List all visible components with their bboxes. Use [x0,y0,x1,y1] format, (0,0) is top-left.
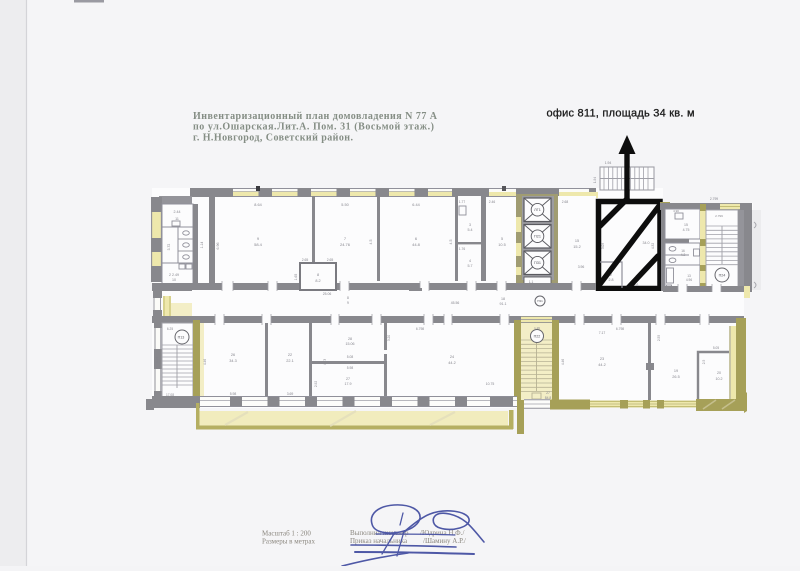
svg-text:П31: П31 [537,299,543,303]
svg-text:5.50: 5.50 [341,203,348,207]
svg-text:17.9: 17.9 [345,382,352,386]
svg-text:24: 24 [450,355,454,359]
svg-text:2 2.49: 2 2.49 [169,273,179,277]
svg-text:15: 15 [575,239,579,243]
svg-text:4.90: 4.90 [673,209,679,213]
svg-text:20: 20 [717,371,721,375]
svg-text:2.799: 2.799 [710,197,718,201]
svg-text:1.65: 1.65 [294,274,298,281]
svg-text:9: 9 [347,301,349,305]
svg-text:Инвентаризационный план домо: Инвентаризационный план домовладения N 7… [193,111,438,122]
svg-text:84.8: 84.8 [545,396,552,400]
svg-text:6.798: 6.798 [416,327,424,331]
svg-text:10.75: 10.75 [486,382,495,386]
svg-text:П21: П21 [534,235,541,239]
svg-text:44.2: 44.2 [598,363,605,367]
svg-text:8.2: 8.2 [315,279,320,283]
svg-text:5.7: 5.7 [468,264,473,268]
svg-text:34.0: 34.0 [643,241,650,245]
svg-text:19: 19 [674,369,678,373]
svg-text:1.76: 1.76 [459,247,466,251]
svg-text:4: 4 [469,259,471,263]
svg-text:/Шамину А.Р./: /Шамину А.Р./ [423,537,466,545]
svg-text:91.1: 91.1 [500,302,507,306]
svg-text:П13: П13 [178,335,185,339]
svg-text:4.46: 4.46 [561,359,565,365]
svg-text:6.96: 6.96 [216,243,220,250]
svg-text:2.65: 2.65 [327,258,334,262]
svg-text:15.06: 15.06 [346,342,355,346]
svg-text:4.96: 4.96 [686,278,692,282]
svg-text:2.92: 2.92 [314,381,318,387]
svg-text:8: 8 [347,296,349,300]
svg-text:П22: П22 [534,334,541,338]
svg-text:Выполнил инженер: Выполнил инженер [350,529,409,537]
svg-text:1.94: 1.94 [593,177,597,183]
svg-text:44.8: 44.8 [412,242,421,247]
svg-text:15: 15 [684,223,688,227]
svg-text:3.09: 3.09 [601,243,605,249]
svg-text:18: 18 [501,297,505,301]
svg-text:4.2: 4.2 [681,253,686,257]
svg-text:офис 811, площадь 34 кв. м: офис 811, площадь 34 кв. м [547,108,695,120]
svg-text:3.20: 3.20 [387,335,391,341]
svg-text:1.14: 1.14 [200,242,204,249]
svg-text:Размеры в метрах: Размеры в метрах [262,537,315,545]
svg-text:4.75: 4.75 [683,228,690,232]
svg-text:5.4: 5.4 [468,228,473,232]
svg-text:25.06: 25.06 [323,292,332,296]
svg-text:4.5: 4.5 [369,240,373,245]
svg-text:26.5: 26.5 [672,375,679,379]
svg-text:Масштаб 1 : 200: Масштаб 1 : 200 [262,530,311,538]
svg-text:7.17: 7.17 [599,331,606,335]
svg-text:2.5: 2.5 [702,360,706,365]
svg-text:8: 8 [317,273,319,277]
svg-text:ЛГ1: ЛГ1 [534,208,541,212]
svg-text:6.798: 6.798 [616,327,624,331]
svg-text:1.26: 1.26 [534,326,540,330]
svg-text:5.98: 5.98 [230,392,237,396]
svg-text:10.2: 10.2 [716,377,723,381]
svg-text:2.44: 2.44 [174,210,181,214]
svg-text:27: 27 [346,377,350,381]
svg-text:34.3: 34.3 [229,359,236,363]
svg-text:6.25: 6.25 [167,327,173,331]
svg-text:2.55: 2.55 [657,335,661,341]
svg-text:22: 22 [288,353,292,357]
svg-text:2.46: 2.46 [489,200,496,204]
svg-text:4.5: 4.5 [449,240,453,245]
svg-text:3.69: 3.69 [287,392,294,396]
svg-text:2.799: 2.799 [715,214,723,218]
svg-text:г. Н.Новгород, Советский ра: г. Н.Новгород, Советский район. [193,132,354,143]
svg-text:10.5: 10.5 [498,243,505,247]
svg-text:23: 23 [600,357,604,361]
svg-text:44.2: 44.2 [448,361,455,365]
svg-text:8.64: 8.64 [254,203,261,207]
svg-text:2.68: 2.68 [562,200,569,204]
svg-text:15.2: 15.2 [573,245,580,249]
svg-text:4.46: 4.46 [203,359,207,365]
svg-text:5.08: 5.08 [347,355,354,359]
svg-text:24.76: 24.76 [340,242,351,247]
svg-text:11: 11 [175,217,179,221]
svg-text:58.4: 58.4 [254,242,263,247]
svg-text:27: 27 [546,391,550,395]
svg-text:1.77: 1.77 [459,200,466,204]
svg-text:22.1: 22.1 [286,359,293,363]
svg-text:2.8: 2.8 [609,278,614,282]
svg-text:3.72: 3.72 [167,244,171,251]
svg-text:П24: П24 [719,274,726,278]
svg-text:6.44: 6.44 [412,203,419,207]
svg-text:5.05: 5.05 [713,346,719,350]
svg-text:3: 3 [469,223,471,227]
svg-text:/Юдрина Н.Ф./: /Юдрина Н.Ф./ [420,529,464,537]
svg-text:5.98: 5.98 [347,366,354,370]
svg-text:П31: П31 [534,261,541,265]
svg-text:5: 5 [501,237,503,241]
svg-text:10: 10 [172,278,176,282]
svg-text:45.56: 45.56 [451,301,460,305]
svg-text:4.24: 4.24 [155,357,159,363]
svg-text:2.65: 2.65 [302,258,309,262]
svg-text:1.94: 1.94 [605,161,612,165]
svg-text:по ул.Ошарская.Лит.А. Пом.: по ул.Ошарская.Лит.А. Пом. 31 (Восьмой э… [193,122,434,133]
svg-text:28: 28 [348,337,352,341]
svg-text:Приказ начальника: Приказ начальника [350,537,408,545]
svg-text:4.32: 4.32 [651,243,655,249]
svg-text:3.96: 3.96 [578,265,585,269]
svg-text:26: 26 [231,353,235,357]
